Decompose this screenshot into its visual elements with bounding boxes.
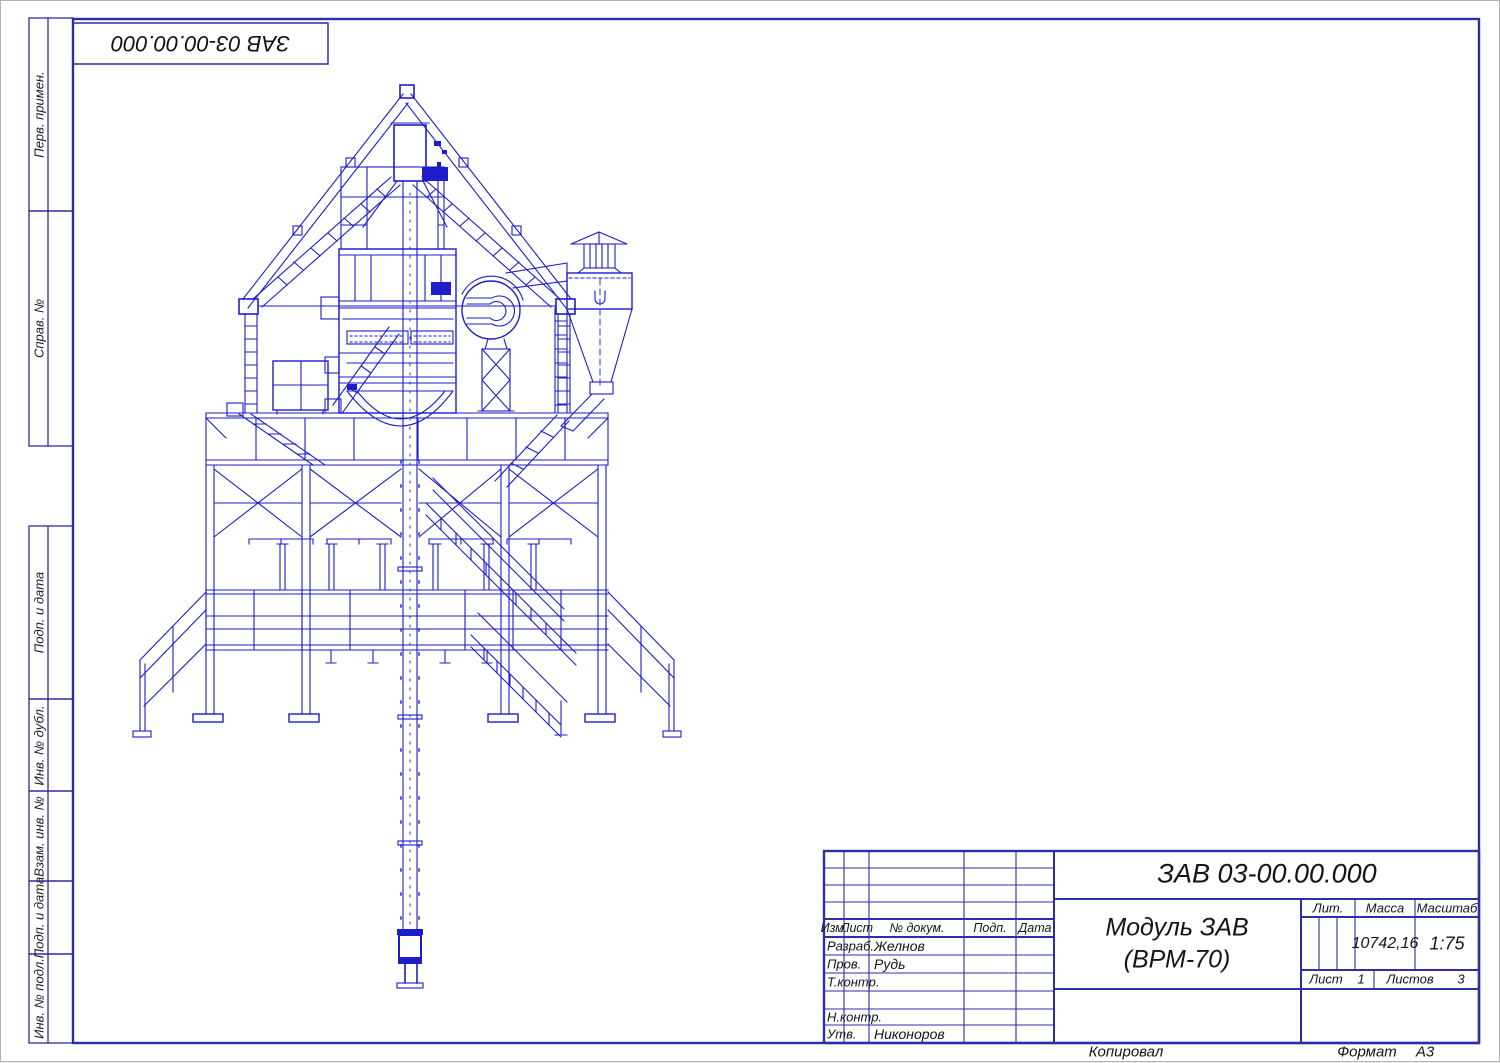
scale-value: 1:75: [1429, 934, 1464, 955]
drawing-sheet: ЗАВ 03-00.00.000 Перв. примен. Справ. № …: [0, 0, 1500, 1062]
margin-label-perv-primen: Перв. примен.: [29, 29, 48, 199]
lit-label: Лит.: [1313, 901, 1343, 916]
hopper-braces: [214, 469, 598, 590]
band-chute-right: [495, 415, 569, 487]
sheets-label: Листов: [1386, 972, 1433, 987]
mass-label: Масса: [1366, 901, 1404, 916]
margin-label-sprav-no: Справ. №: [29, 223, 48, 433]
row-label-utv: Утв.: [827, 1027, 857, 1042]
mid-railings: [206, 590, 608, 663]
name-utv: Никоноров: [874, 1026, 945, 1042]
elevator-tube: [398, 181, 422, 929]
format-value: А3: [1416, 1044, 1434, 1061]
elevator-head: [363, 123, 448, 227]
stairs-left: [133, 592, 206, 737]
cyclone: [555, 232, 632, 431]
copied-label: Копировал: [1089, 1044, 1164, 1061]
document-name-line2: (ВРМ-70): [1124, 946, 1231, 975]
margin-label-podp-i-data-1: Подп. и дата: [29, 537, 48, 687]
name-prov: Рудь: [874, 956, 905, 972]
format-label: Формат: [1337, 1044, 1397, 1061]
col-header-list: Лист: [841, 921, 873, 935]
margin-label-inv-no-podl: Инв. № подл.: [29, 943, 48, 1053]
row-label-tkontr: Т.контр.: [827, 975, 879, 990]
sheet-value: 1: [1357, 972, 1364, 987]
platform-band: [206, 413, 608, 465]
row-label-nkontr: Н.контр.: [827, 1010, 882, 1025]
panel-box: [273, 361, 328, 414]
sheet-linework: [1, 1, 1500, 1063]
sheet-label: Лист: [1309, 972, 1342, 987]
col-header-dokum: № докум.: [889, 921, 944, 935]
machine-discharge-chute: [325, 327, 399, 413]
band-chute-left: [227, 403, 325, 465]
row-label-prov: Пров.: [827, 957, 861, 972]
technical-drawing: [133, 85, 681, 988]
elevator-boot: [397, 929, 423, 988]
rotated-designation-stamp: ЗАВ 03-00.00.000: [73, 23, 328, 64]
document-name-line1: Модуль ЗАВ: [1105, 914, 1248, 943]
col-header-podp: Подп.: [973, 921, 1006, 935]
mass-value: 10742,16: [1352, 935, 1419, 953]
sheets-value: 3: [1457, 972, 1464, 987]
name-razrab: Желнов: [874, 938, 925, 954]
titleblock-designation: ЗАВ 03-00.00.000: [1157, 859, 1376, 890]
col-header-data: Дата: [1019, 921, 1052, 935]
stairs-right: [608, 592, 681, 737]
fan: [462, 263, 567, 411]
row-label-razrab: Разраб.: [827, 939, 874, 954]
scale-label: Масштаб: [1417, 901, 1478, 916]
